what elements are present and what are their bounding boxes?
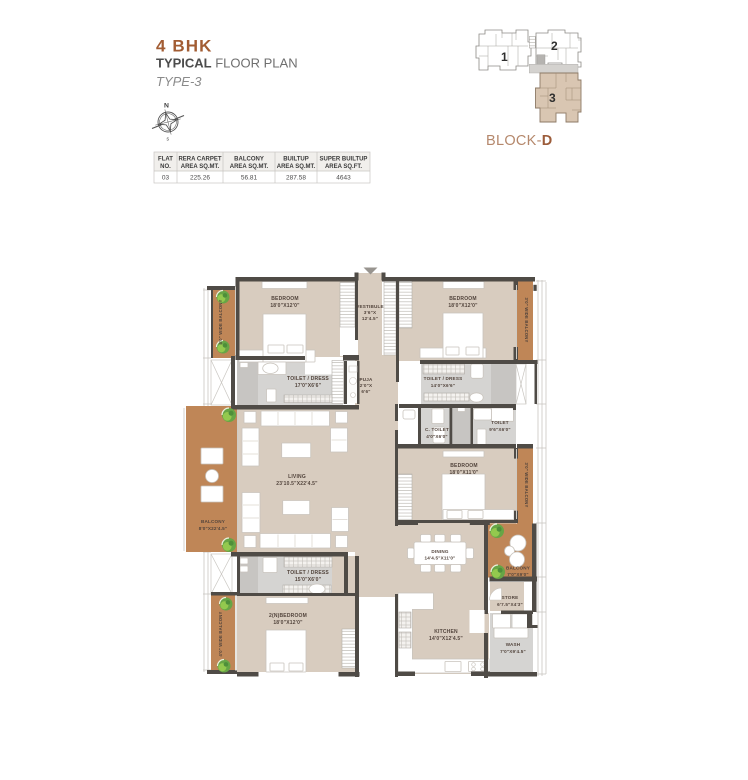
svg-text:VESTIBULE: VESTIBULE — [356, 304, 384, 309]
svg-text:RERA CARPET: RERA CARPET — [178, 157, 221, 163]
svg-text:STORE: STORE — [502, 595, 519, 600]
svg-text:7'0"X9'4.5": 7'0"X9'4.5" — [500, 649, 526, 654]
svg-text:2(N)BEDROOM: 2(N)BEDROOM — [269, 613, 307, 619]
svg-text:17'0"X6'6": 17'0"X6'6" — [295, 383, 322, 389]
svg-text:BLOCK-D: BLOCK-D — [486, 133, 553, 149]
svg-text:9'6"X6'0": 9'6"X6'0" — [489, 427, 511, 432]
svg-text:7'0"X9'0": 7'0"X9'0" — [507, 572, 529, 577]
svg-text:14'0"X12'4.5": 14'0"X12'4.5" — [429, 636, 463, 642]
svg-text:DINING: DINING — [431, 549, 449, 554]
svg-text:TOILET / DRESS: TOILET / DRESS — [424, 376, 463, 381]
svg-text:18'0"X12'0": 18'0"X12'0" — [270, 303, 300, 309]
svg-text:WASH: WASH — [506, 642, 521, 647]
svg-text:3'0" WIDE BALCONY: 3'0" WIDE BALCONY — [524, 462, 529, 507]
svg-text:1: 1 — [501, 50, 508, 64]
svg-text:FLAT: FLAT — [158, 157, 173, 163]
svg-text:287.58: 287.58 — [286, 175, 306, 182]
svg-text:TYPICAL FLOOR PLAN: TYPICAL FLOOR PLAN — [156, 56, 298, 71]
svg-text:3: 3 — [549, 91, 556, 105]
svg-text:6'6": 6'6" — [361, 389, 370, 394]
svg-text:C. TOILET: C. TOILET — [425, 427, 449, 432]
svg-text:15'0"X6'0": 15'0"X6'0" — [295, 577, 322, 583]
svg-text:23'10.5"X22'4.5": 23'10.5"X22'4.5" — [276, 481, 318, 487]
svg-text:NO.: NO. — [160, 164, 171, 170]
svg-text:N: N — [164, 103, 169, 110]
svg-text:2'0"X: 2'0"X — [360, 383, 373, 388]
svg-text:TOILET / DRESS: TOILET / DRESS — [287, 570, 329, 576]
svg-text:BEDROOM: BEDROOM — [271, 296, 299, 302]
svg-text:14'0"X6'6": 14'0"X6'6" — [431, 383, 455, 388]
svg-text:PUJA: PUJA — [359, 377, 373, 382]
svg-text:TYPE-3: TYPE-3 — [156, 74, 202, 89]
svg-text:6'7.5"X4'3": 6'7.5"X4'3" — [497, 602, 523, 607]
svg-text:18'0"X12'0": 18'0"X12'0" — [448, 303, 478, 309]
svg-text:3'6"X: 3'6"X — [364, 310, 377, 315]
svg-text:BUILTUP: BUILTUP — [283, 157, 309, 163]
svg-text:8'0"X22'4.5": 8'0"X22'4.5" — [199, 526, 228, 531]
svg-text:3'0" WIDE BALCONY: 3'0" WIDE BALCONY — [524, 297, 529, 342]
svg-text:18'0"X11'0": 18'0"X11'0" — [449, 470, 478, 476]
svg-text:TOILET / DRESS: TOILET / DRESS — [287, 376, 329, 382]
svg-text:SUPER BUILTUP: SUPER BUILTUP — [320, 157, 368, 163]
svg-text:18'0"X12'0": 18'0"X12'0" — [273, 620, 303, 626]
svg-text:BEDROOM: BEDROOM — [449, 296, 477, 302]
svg-text:BALCONY: BALCONY — [201, 519, 225, 524]
svg-text:12'4.5": 12'4.5" — [362, 316, 378, 321]
svg-text:AREA SQ.MT.: AREA SQ.MT. — [230, 164, 269, 170]
svg-text:14'4.5"X11'0": 14'4.5"X11'0" — [424, 556, 455, 561]
svg-text:4'0"X6'0": 4'0"X6'0" — [426, 434, 448, 439]
svg-text:4'0" WIDE BALCONY: 4'0" WIDE BALCONY — [218, 611, 223, 656]
svg-text:KITCHEN: KITCHEN — [434, 629, 458, 635]
svg-text:BALCONY: BALCONY — [506, 566, 530, 571]
svg-text:225.26: 225.26 — [190, 175, 210, 182]
svg-text:TOILET: TOILET — [491, 420, 508, 425]
svg-text:4 BHK: 4 BHK — [156, 37, 213, 56]
svg-text:LIVING: LIVING — [288, 474, 306, 480]
svg-text:BALCONY: BALCONY — [234, 157, 264, 163]
svg-text:AREA SQ.FT.: AREA SQ.FT. — [325, 164, 362, 170]
svg-text:4'0" WIDE BALCONY: 4'0" WIDE BALCONY — [218, 299, 223, 344]
svg-text:AREA SQ.MT.: AREA SQ.MT. — [181, 164, 220, 170]
svg-text:56.81: 56.81 — [241, 175, 258, 182]
svg-text:03: 03 — [162, 175, 170, 182]
svg-text:4643: 4643 — [336, 175, 351, 182]
svg-text:BEDROOM: BEDROOM — [450, 463, 478, 469]
svg-text:2: 2 — [551, 39, 558, 53]
svg-text:AREA SQ.MT.: AREA SQ.MT. — [277, 164, 316, 170]
